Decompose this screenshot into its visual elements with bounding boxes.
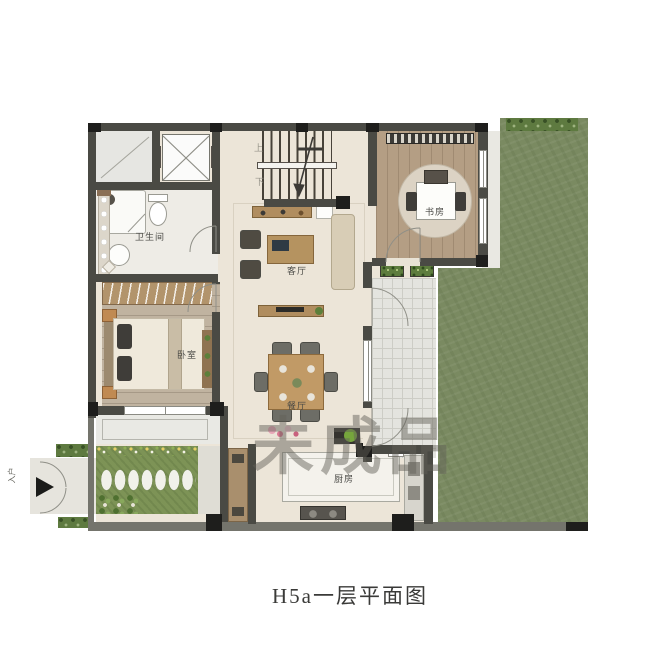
column-study-se <box>476 255 488 267</box>
wall-kitchen-left <box>248 444 256 524</box>
column-bedroom-sw <box>88 402 98 416</box>
bookshelf <box>386 133 474 144</box>
bed-headboard <box>104 322 113 386</box>
label-living-room: 客厅 <box>287 264 307 277</box>
dining-chair-right <box>324 372 338 392</box>
toilet <box>148 194 168 202</box>
door-gap-patio-upper <box>363 288 372 326</box>
wall-elevator-left <box>152 131 160 189</box>
study-chair-right <box>455 192 466 211</box>
armchair-1 <box>240 230 261 249</box>
living-plant <box>315 307 323 315</box>
lawn-southeast <box>438 268 502 527</box>
hedge-top-right <box>506 118 578 131</box>
label-bathroom: 卫生间 <box>135 230 165 243</box>
wall-study-right <box>478 123 488 266</box>
terrace-inner-line <box>102 419 208 440</box>
plan-caption: H5a一层平面图 <box>272 580 428 610</box>
window-study-1 <box>479 150 487 188</box>
wall-study-left <box>368 131 377 206</box>
label-study: 书房 <box>425 205 445 218</box>
label-bedroom: 卧室 <box>177 348 197 361</box>
patio-tiles <box>372 278 436 458</box>
stepping-stones <box>100 468 196 492</box>
window-bedroom <box>124 406 206 415</box>
wall-kitchen-right <box>424 445 433 524</box>
column-top-5 <box>475 123 488 132</box>
tv <box>276 307 304 312</box>
console-table <box>252 206 312 218</box>
stairs-upper-flight <box>262 131 332 164</box>
garden-path <box>198 446 220 514</box>
kitchen-counter-right <box>404 455 424 521</box>
column-bedroom-se <box>210 402 224 416</box>
column-top-1 <box>88 123 101 132</box>
bed-pillow-2 <box>117 356 132 381</box>
dining-chair-left <box>254 372 268 392</box>
armchair-2 <box>240 260 261 279</box>
door-gap-study <box>386 258 420 266</box>
wall-bathroom-bedroom <box>96 274 218 282</box>
wall-bottom <box>88 522 588 531</box>
cabinet-plant-icon <box>344 429 357 442</box>
study-cabinet-top <box>424 170 448 184</box>
label-dining-room: 餐厅 <box>287 399 307 412</box>
door-gap-bedroom <box>212 284 220 312</box>
study-chair-left <box>406 192 417 211</box>
wall-elevator-right <box>212 131 220 189</box>
window-patio <box>363 340 372 402</box>
column-bottom-1 <box>206 514 222 531</box>
stairs-lower-flight <box>262 169 332 200</box>
elevator-cab <box>162 134 210 181</box>
toilet-bowl <box>149 202 167 226</box>
wardrobe <box>102 282 216 305</box>
stairs-handrail <box>257 162 337 169</box>
entry-path <box>30 458 96 514</box>
sofa <box>331 214 355 290</box>
floor-plan-canvas: 卫生间 客厅 卧室 书房 餐厅 厨房 上 下 入户 未成品 H5a一层平面图 <box>0 0 660 660</box>
coffee-table-tray <box>272 240 289 251</box>
bed-pillow-1 <box>117 324 132 349</box>
hedge-entry-top <box>56 444 88 457</box>
pantry-cabinet <box>228 448 248 522</box>
column-top-3 <box>296 123 308 132</box>
wall-top <box>88 123 488 131</box>
wall-left <box>88 123 96 418</box>
door-gap-patio-lower <box>363 408 372 446</box>
column-stairs-right <box>336 196 350 209</box>
label-stairs-down: 下 <box>255 175 265 188</box>
wall-bathroom-right <box>212 190 220 254</box>
window-study-2 <box>479 198 487 244</box>
label-entrance: 入户 <box>7 468 18 484</box>
column-top-2 <box>210 123 222 132</box>
wall-stairs-bottom <box>264 199 344 207</box>
column-top-4 <box>366 123 379 132</box>
label-kitchen: 厨房 <box>334 472 354 485</box>
wall-foyer-bottom <box>96 182 220 190</box>
column-bottom-2 <box>392 514 414 531</box>
column-bottom-3 <box>566 522 588 531</box>
lawn-east <box>500 118 588 527</box>
label-stairs-up: 上 <box>254 141 264 154</box>
hedge-entry-bottom <box>58 517 88 528</box>
wall-dining-west <box>220 406 228 522</box>
cooktop <box>300 506 346 520</box>
wall-left-garden <box>88 418 94 522</box>
garden-shrubs <box>98 494 138 514</box>
foyer-room <box>96 131 154 184</box>
garden-flower-strip <box>96 446 198 456</box>
